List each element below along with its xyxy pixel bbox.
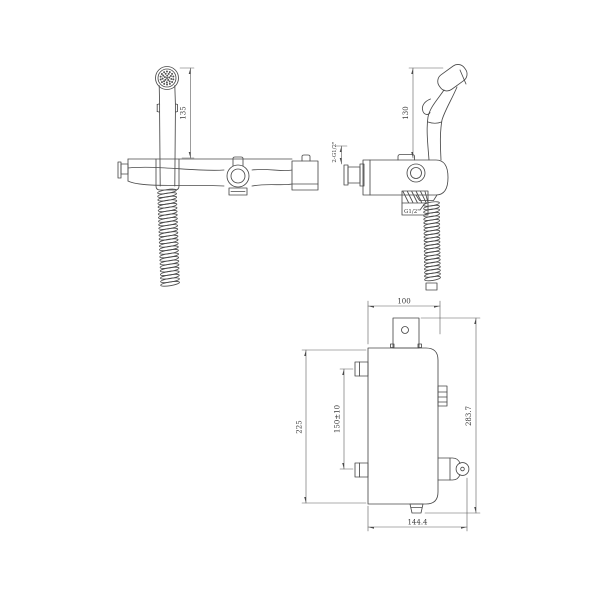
- sprayer-handle-side: [422, 87, 457, 160]
- mounting-bracket-bottom: [355, 463, 368, 477]
- shower-hose-coil-front: [157, 188, 179, 287]
- dimension-side-height: 130: [402, 68, 443, 158]
- faucet-body-front: [118, 155, 318, 195]
- body-height-label: 225: [296, 420, 304, 433]
- hose-connector-front: [118, 162, 128, 178]
- plan-view: 100 225 150±10 283.7 144.4: [296, 298, 481, 532]
- diverter-knob-side: [407, 164, 425, 182]
- side-height-label: 130: [402, 106, 410, 119]
- diverter-knob-front: [227, 157, 249, 195]
- dimension-inlet-thread: 2-G1/2": [332, 141, 347, 164]
- valve-body-plan: [368, 348, 438, 504]
- spray-face-dots: [160, 71, 174, 85]
- spout-plan: [438, 458, 469, 480]
- mounting-bracket-top: [355, 362, 368, 376]
- total-height-label: 283.7: [465, 406, 473, 426]
- sprayer-handle-front: [157, 86, 177, 187]
- dimension-total-width: 144.4: [368, 478, 467, 531]
- shower-hose-coil-side: [423, 201, 440, 282]
- front-view: 135: [118, 67, 318, 288]
- side-view: 2-G1/2" G1/2" 130: [332, 61, 470, 290]
- mount-spacing-label: 150±10: [334, 405, 342, 433]
- check-valve-plan: [438, 386, 447, 406]
- technical-drawing-page: 135: [0, 0, 600, 600]
- hose-end-fitting: [426, 283, 437, 290]
- hose-outlet-plan: [410, 504, 423, 513]
- top-width-label: 100: [397, 298, 410, 306]
- dimension-mount-spacing: 150±10: [334, 369, 354, 469]
- inlet-thread-label: 2-G1/2": [332, 141, 338, 162]
- total-width-label: 144.4: [407, 519, 428, 527]
- hose-thread-label: G1/2": [404, 209, 420, 215]
- sprayer-head-side: [435, 61, 471, 94]
- dimension-front-height: 135: [180, 68, 195, 158]
- dimension-top-width: 100: [368, 298, 440, 345]
- dimension-total-height: 283.7: [421, 318, 480, 513]
- inlet-connector-side: [344, 164, 364, 186]
- holder-mount-tab: [391, 318, 422, 348]
- front-height-label: 135: [180, 106, 188, 119]
- handle-box-front: [292, 161, 318, 190]
- faucet-technical-drawing: 135: [0, 0, 600, 600]
- faucet-body-side: [363, 155, 448, 201]
